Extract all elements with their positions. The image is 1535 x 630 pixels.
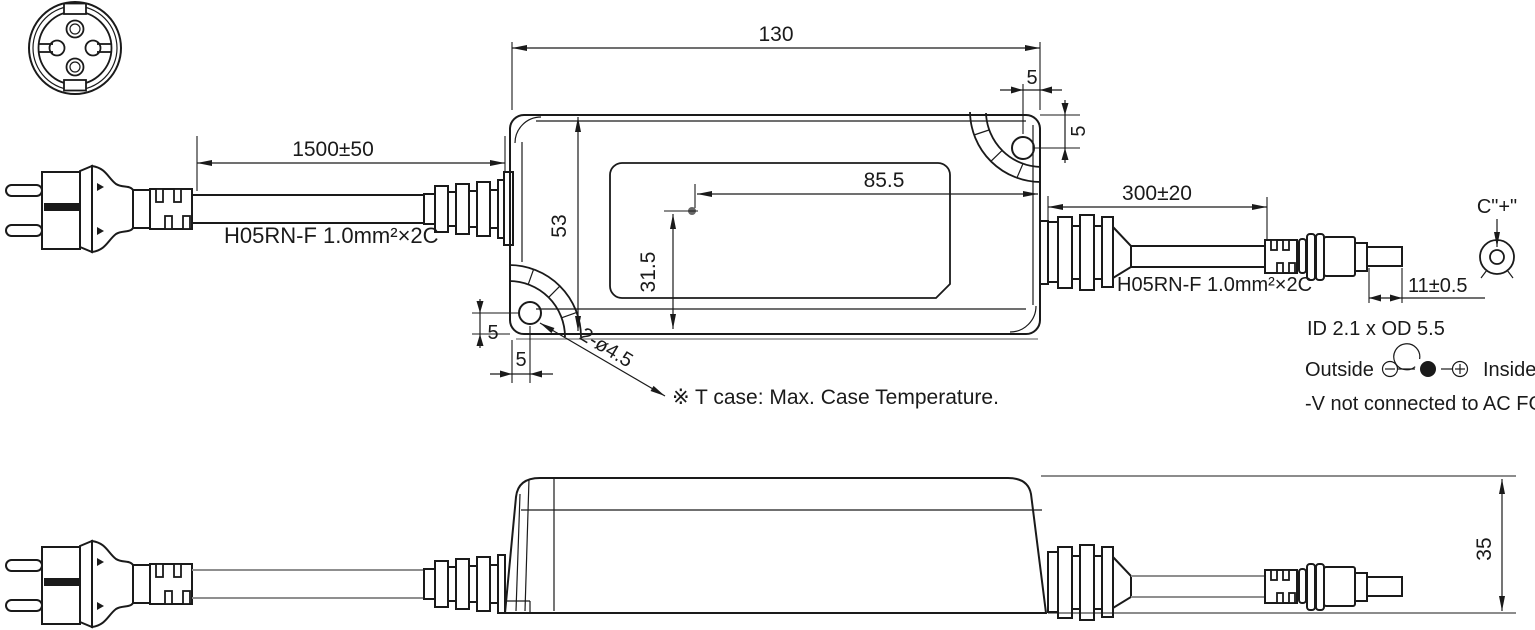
output-cable-side-view	[1131, 576, 1265, 597]
dim-tcase-y: 31.5	[637, 252, 660, 293]
plug-face-top-notch	[64, 4, 86, 15]
plug-earth-strip	[44, 578, 80, 586]
fg-note: -V not connected to AC FG	[1305, 393, 1535, 415]
dc-plug-side-view	[1265, 564, 1402, 610]
dim-overall-length: 130	[758, 23, 793, 46]
plug-pin	[6, 185, 42, 196]
mounting-holes-label: 2-ø4.5	[576, 324, 637, 373]
dim-case-width: 53	[548, 214, 571, 237]
plug-face-plate	[80, 541, 92, 627]
dc-connector-label: C"+"	[1477, 196, 1517, 218]
output-cable-top-view	[1131, 246, 1265, 267]
plug-face-bottom-pin-hole	[67, 59, 84, 76]
ac-plug-face-view	[29, 2, 121, 94]
dc-plug-ring	[1299, 569, 1306, 603]
plug-bell	[92, 166, 133, 252]
mounting-hole	[519, 302, 541, 324]
plug-pin	[6, 225, 42, 236]
plug-pin	[6, 600, 42, 611]
plug-face-right-contact	[86, 41, 101, 56]
dim-output-cable-length: 300±20	[1122, 182, 1192, 205]
dc-plug-ring	[1316, 564, 1324, 610]
dc-plug-ring	[1316, 234, 1324, 280]
barrel-sleeve-icon	[1394, 344, 1420, 370]
dimensions-top-view: 1500±50 H05RN-F 1.0mm²×2C 130 5 5 53 85.…	[197, 23, 1485, 396]
mechanical-drawing-page: C"+" 1500±50 H05RN-F 1.0mm²×2C 130 5 5	[0, 0, 1535, 630]
polarity-inside-label: Inside	[1483, 359, 1535, 381]
case-top-view	[509, 112, 1048, 339]
dim-input-cable-length: 1500±50	[292, 138, 374, 161]
dc-plug-barrel	[1367, 577, 1402, 596]
plug-face-plate	[80, 166, 92, 252]
dim-case-height: 35	[1473, 537, 1496, 560]
dc-plug-body	[1324, 237, 1355, 276]
input-cable-spec: H05RN-F 1.0mm²×2C	[224, 223, 439, 248]
center-pin-icon	[1420, 361, 1436, 377]
cable-exit-bushing	[1040, 221, 1048, 284]
case-corner-detail	[1010, 306, 1036, 332]
dc-plug-barrel	[1367, 247, 1402, 266]
dim-hole-edge-y: 5	[1068, 125, 1090, 136]
plug-bell	[92, 541, 133, 627]
dim-hole-left-y: 5	[487, 322, 498, 344]
plug-pin	[6, 560, 42, 571]
plug-face-bottom-notch	[64, 80, 86, 91]
dim-tcase-x: 85.5	[864, 169, 905, 192]
tcase-note: ※ T case: Max. Case Temperature.	[672, 386, 999, 409]
cable-entry-bushing	[504, 172, 513, 245]
case-outline	[510, 115, 1040, 334]
dc-plug-ring	[1299, 239, 1306, 273]
input-cable-side-view	[192, 570, 424, 598]
dc-connector-end-view: C"+"	[1477, 196, 1517, 278]
plug-face-top-pin-hole	[67, 21, 84, 38]
dim-dc-plug-length: 11±0.5	[1408, 275, 1468, 297]
case-side-view	[505, 478, 1046, 613]
case-side-outline	[505, 478, 1046, 613]
plug-face-left-contact	[50, 41, 65, 56]
dc-plug-body	[1324, 567, 1355, 606]
dc-plug-step	[1355, 573, 1367, 601]
ac-plug-side-view	[6, 541, 192, 627]
mounting-ear-top-right	[970, 112, 1041, 182]
ac-plug-top-view	[6, 166, 192, 252]
dim-hole-edge-x: 5	[1026, 67, 1037, 89]
mounting-hole	[1012, 137, 1034, 159]
output-cable-spec: H05RN-F 1.0mm²×2C	[1117, 274, 1312, 296]
input-cable-top-view	[192, 195, 424, 223]
dim-hole-left-x: 5	[515, 349, 526, 371]
dc-plug-ring	[1307, 564, 1315, 610]
polarity-diagram: Outside Inside	[1305, 344, 1535, 381]
dc-plug-step	[1355, 243, 1367, 271]
plug-earth-strip	[44, 203, 80, 211]
dc-plug-size-note: ID 2.1 x OD 5.5	[1307, 318, 1445, 340]
input-strain-relief-side-view	[424, 555, 505, 613]
output-strain-relief-side-view	[1048, 545, 1131, 620]
power-adapter-dimension-drawing: C"+" 1500±50 H05RN-F 1.0mm²×2C 130 5 5	[0, 0, 1535, 630]
polarity-outside-label: Outside	[1305, 359, 1374, 381]
